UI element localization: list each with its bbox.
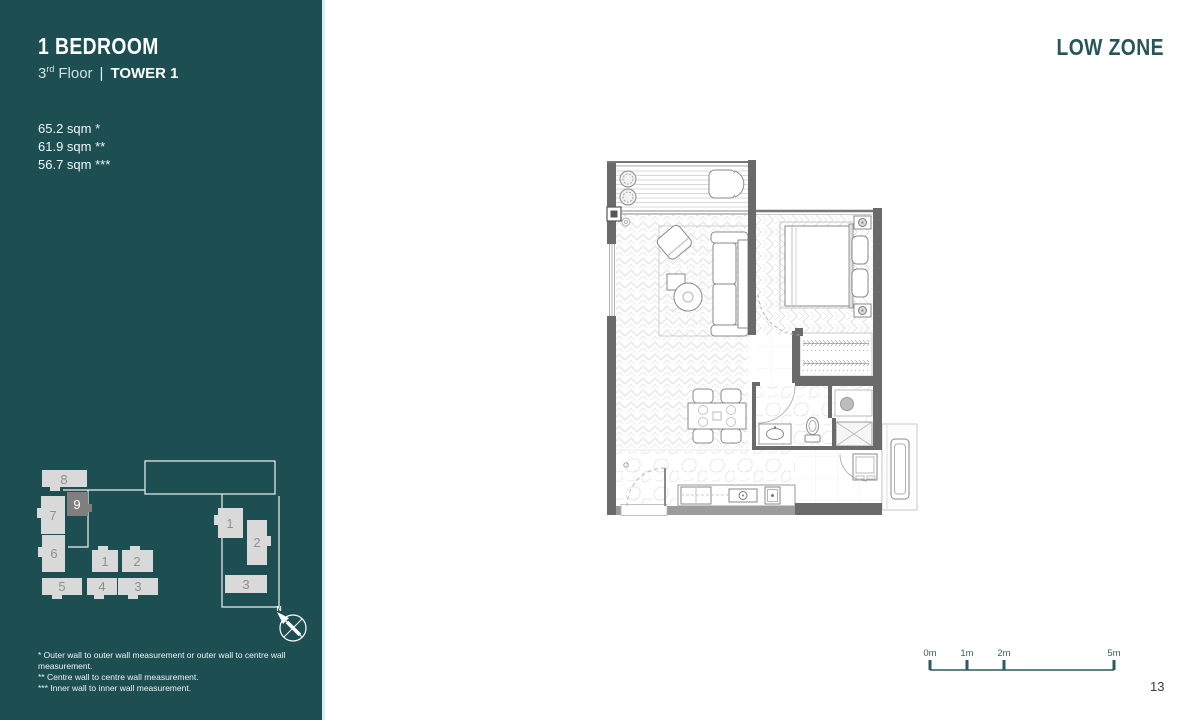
site-building-2: 2	[133, 554, 140, 569]
area-value: 65.2 sqm *	[38, 120, 110, 138]
site-building-8: 8	[60, 472, 67, 487]
bed	[785, 226, 849, 306]
scale-bar: 0m 1m 2m 5m	[920, 646, 1130, 678]
compass-north-label: N	[276, 606, 281, 613]
site-building-7: 7	[49, 508, 56, 523]
footnote: *** Inner wall to inner wall measurement…	[38, 683, 322, 694]
sink-basin	[767, 429, 784, 440]
site-building-5: 5	[58, 579, 65, 594]
footnotes: * Outer wall to outer wall measurement o…	[38, 650, 322, 694]
entrance-opening	[621, 505, 667, 516]
toilet	[805, 418, 820, 443]
page-number: 13	[1150, 679, 1164, 694]
site-building-9-label: 9	[73, 497, 80, 512]
lounge-chair	[709, 170, 736, 198]
round-basin	[841, 398, 854, 411]
sliding-door	[621, 211, 748, 214]
tower-label: TOWER 1	[110, 65, 178, 82]
scale-label-2m: 2m	[997, 648, 1010, 659]
round-table	[674, 283, 702, 311]
site-building-1: 1	[101, 554, 108, 569]
sofa	[711, 232, 748, 336]
footnote: * Outer wall to outer wall measurement o…	[38, 650, 322, 672]
page-title: 1 BEDROOM	[38, 33, 159, 60]
wardrobe-wall	[792, 331, 800, 382]
headboard	[849, 224, 853, 308]
dining-chair	[693, 429, 713, 443]
floor-plan	[595, 148, 935, 558]
compass-icon: N	[276, 606, 306, 641]
scale-label-5m: 5m	[1107, 648, 1120, 659]
footnote: ** Centre wall to centre wall measuremen…	[38, 672, 322, 683]
floor-word: Floor	[58, 65, 92, 82]
zone-label: LOW ZONE	[1057, 34, 1164, 61]
floor-tower-subtitle: 3rdFloor|TOWER 1	[38, 64, 179, 82]
scale-label-0m: 0m	[923, 648, 936, 659]
dining-chair	[693, 389, 713, 403]
area-value: 61.9 sqm **	[38, 138, 110, 156]
pillow	[852, 269, 868, 297]
dining-chair	[721, 429, 741, 443]
kitchen	[678, 485, 795, 506]
area-measurements: 65.2 sqm * 61.9 sqm ** 56.7 sqm ***	[38, 120, 110, 174]
bathroom-wall	[752, 382, 756, 450]
brochure-page: 1 BEDROOM 3rdFloor|TOWER 1 65.2 sqm * 61…	[0, 0, 1200, 720]
living-bedroom-wall	[748, 160, 756, 335]
building-blocks: 8 7 6 1 2 5 4 3 1 2 3 9	[37, 470, 271, 599]
wardrobe	[800, 333, 872, 376]
planter	[620, 171, 636, 187]
dining-chair	[721, 389, 741, 403]
scale-label-1m: 1m	[960, 648, 973, 659]
planter	[620, 189, 636, 205]
site-plan-map: 8 7 6 1 2 5 4 3 1 2 3 9 N	[30, 452, 320, 652]
site-building-3: 3	[134, 579, 141, 594]
subtitle-divider: |	[100, 65, 104, 82]
pillow	[852, 236, 868, 264]
shower	[836, 422, 872, 446]
bottom-right-wall	[795, 503, 882, 515]
sidebar: 1 BEDROOM 3rdFloor|TOWER 1 65.2 sqm * 61…	[0, 0, 325, 720]
right-exterior-wall	[873, 208, 882, 450]
site-building-4: 4	[98, 579, 105, 594]
site-building-r2: 2	[253, 535, 260, 550]
site-building-r1: 1	[226, 516, 233, 531]
site-building-r3: 3	[242, 577, 249, 592]
area-value: 56.7 sqm ***	[38, 156, 110, 174]
floor-ordinal: rd	[46, 64, 54, 74]
washer	[853, 454, 877, 480]
site-building-6: 6	[50, 546, 57, 561]
